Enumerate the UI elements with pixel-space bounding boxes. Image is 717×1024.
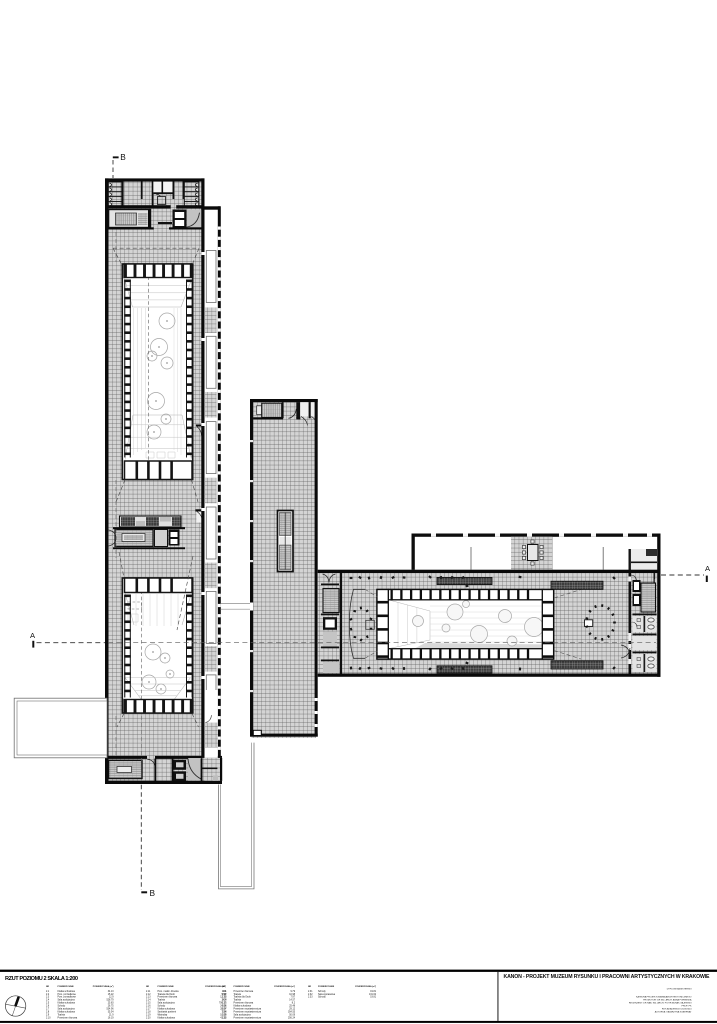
svg-text:Przestrzen wystawiennicza: Przestrzen wystawiennicza <box>234 1008 262 1011</box>
svg-text:Pom. porzadkowe: Pom. porzadkowe <box>58 993 77 996</box>
svg-text:Klatka schodowa: Klatka schodowa <box>58 990 76 993</box>
svg-text:2.32: 2.32 <box>308 994 313 996</box>
svg-text:2.3: 2.3 <box>46 997 50 999</box>
svg-text:528.79: 528.79 <box>106 1000 114 1002</box>
svg-text:NR: NR <box>308 986 312 988</box>
svg-text:10.98: 10.98 <box>289 994 295 996</box>
svg-text:2.1: 2.1 <box>46 991 50 993</box>
svg-text:2.6: 2.6 <box>46 1006 50 1008</box>
svg-text:POWIERZCHNIA (m²): POWIERZCHNIA (m²) <box>355 985 376 988</box>
svg-text:ROK AKADEMICKI 2023/2024: ROK AKADEMICKI 2023/2024 <box>662 1008 692 1011</box>
svg-text:2.22: 2.22 <box>222 994 227 996</box>
svg-text:2.12: 2.12 <box>146 994 151 996</box>
svg-text:POWIERZCHNIE: POWIERZCHNIE <box>158 986 175 988</box>
svg-text:B: B <box>150 888 156 898</box>
svg-text:26.75: 26.75 <box>108 1006 114 1008</box>
svg-text:9.79: 9.79 <box>291 991 296 993</box>
svg-text:2.15: 2.15 <box>146 1003 151 1005</box>
svg-text:Klatka schodowa: Klatka schodowa <box>158 1016 176 1019</box>
svg-text:2.31: 2.31 <box>308 991 313 993</box>
svg-text:2.30: 2.30 <box>222 1017 227 1019</box>
svg-text:2.25: 2.25 <box>222 1003 227 1005</box>
svg-text:RZUT POZIOMU 2 SKALA 1:200: RZUT POZIOMU 2 SKALA 1:200 <box>5 976 78 982</box>
svg-text:2.11: 2.11 <box>146 991 151 993</box>
svg-text:25.83: 25.83 <box>108 1003 114 1005</box>
svg-text:Sala audytoryjna: Sala audytoryjna <box>234 1013 252 1016</box>
svg-text:15.22: 15.22 <box>108 994 114 996</box>
svg-text:21.9: 21.9 <box>109 1014 114 1016</box>
svg-text:2.27: 2.27 <box>222 1009 227 1011</box>
svg-text:PROMOTOR: DR INZ. ARCH. ANNA P: PROMOTOR: DR INZ. ARCH. ANNA POREBSKA <box>643 999 692 1002</box>
svg-text:Przestrzen biurowa: Przestrzen biurowa <box>234 1002 254 1005</box>
svg-text:19.81: 19.81 <box>370 991 376 993</box>
svg-text:131.62: 131.62 <box>369 994 377 996</box>
svg-text:POWIERZCHNIE: POWIERZCHNIE <box>318 986 335 988</box>
svg-text:Schody: Schody <box>158 1006 167 1008</box>
svg-text:Toaleta: Toaleta <box>234 999 242 1002</box>
svg-text:Klatka schodowa: Klatka schodowa <box>234 1005 252 1008</box>
svg-text:2.13: 2.13 <box>146 997 151 999</box>
svg-text:POWIERZCHNIE: POWIERZCHNIE <box>58 986 75 988</box>
svg-text:8.2: 8.2 <box>292 1003 296 1005</box>
svg-text:AUTORKA: KATARZYNA KUBERNAT: AUTORKA: KATARZYNA KUBERNAT <box>655 1011 692 1014</box>
svg-text:25.48: 25.48 <box>289 1006 295 1008</box>
svg-text:35.54: 35.54 <box>108 1012 114 1014</box>
svg-text:NR: NR <box>46 986 50 988</box>
svg-text:Klatka schodowa: Klatka schodowa <box>58 1002 76 1005</box>
svg-text:POWIERZCHNIE: POWIERZCHNIE <box>234 986 251 988</box>
svg-text:NR: NR <box>146 986 150 988</box>
svg-text:A: A <box>705 564 711 573</box>
svg-text:16.19: 16.19 <box>108 1017 114 1019</box>
svg-text:34.13: 34.13 <box>108 991 114 993</box>
svg-text:Toaleta dla Osob: Toaleta dla Osob <box>158 993 176 996</box>
svg-text:Przestrzen wystawiennicza: Przestrzen wystawiennicza <box>234 1016 262 1019</box>
svg-text:Wiatrolap: Wiatrolap <box>158 1013 168 1016</box>
svg-text:Schody: Schody <box>58 1006 67 1008</box>
svg-text:2.33: 2.33 <box>308 997 313 999</box>
svg-text:B: B <box>120 152 126 162</box>
svg-text:12.9: 12.9 <box>109 997 114 999</box>
svg-text:KATEDRA PROJEKTOWANIA ARCHITEK: KATEDRA PROJEKTOWANIA ARCHITEKTONICZNEGO <box>636 996 692 999</box>
svg-text:Przestrzen biurowa: Przestrzen biurowa <box>234 990 254 993</box>
svg-text:A: A <box>30 631 36 640</box>
svg-text:Klatka schodowa: Klatka schodowa <box>158 1008 176 1011</box>
svg-text:KANON - PROJEKT MUZEUM RYSUNKU: KANON - PROJEKT MUZEUM RYSUNKU I PRACOWN… <box>504 974 711 980</box>
svg-text:256.24: 256.24 <box>288 1017 296 1019</box>
svg-text:2.10: 2.10 <box>46 1017 51 1019</box>
svg-text:Sanitariat portierni: Sanitariat portierni <box>158 1011 177 1014</box>
svg-text:2.26: 2.26 <box>222 1006 227 1008</box>
svg-text:Przestrzen wystawiennicza: Przestrzen wystawiennicza <box>234 1011 262 1014</box>
svg-text:RECENZENT: DR HAB. INZ. ARCH.: RECENZENT: DR HAB. INZ. ARCH. PIOTR BURA… <box>629 1002 692 1005</box>
svg-text:2.28: 2.28 <box>222 1012 227 1014</box>
svg-text:2.7: 2.7 <box>46 1009 50 1011</box>
svg-text:Pom. matki i dziecka: Pom. matki i dziecka <box>158 990 180 993</box>
svg-text:2.9: 2.9 <box>46 1014 50 1016</box>
svg-text:Przestrzen biurowa: Przestrzen biurowa <box>158 996 178 999</box>
svg-text:Toaleta: Toaleta <box>158 999 166 1002</box>
svg-text:Klatka schodowa: Klatka schodowa <box>58 1011 76 1014</box>
svg-text:Toaleta: Toaleta <box>58 1013 66 1016</box>
svg-text:2.2: 2.2 <box>46 994 50 996</box>
svg-text:Sala wystawowa: Sala wystawowa <box>318 993 336 996</box>
svg-text:354.55: 354.55 <box>288 1012 296 1014</box>
svg-text:534.96: 534.96 <box>106 1009 114 1011</box>
svg-text:Schody: Schody <box>318 997 327 999</box>
svg-text:2.17: 2.17 <box>146 1009 151 1011</box>
svg-text:2.8: 2.8 <box>46 1012 50 1014</box>
svg-text:2.14: 2.14 <box>146 1000 151 1002</box>
svg-text:2.19: 2.19 <box>146 1014 151 1016</box>
svg-text:2.4: 2.4 <box>46 1000 50 1002</box>
svg-text:POWIERZCHNIA (m²): POWIERZCHNIA (m²) <box>93 985 114 988</box>
svg-text:2.24: 2.24 <box>222 1000 227 1002</box>
svg-text:Sala audytoryjna: Sala audytoryjna <box>158 1002 176 1005</box>
svg-text:19.81: 19.81 <box>370 997 376 999</box>
svg-text:2.23: 2.23 <box>222 997 227 999</box>
svg-text:2.18: 2.18 <box>146 1012 151 1014</box>
svg-text:29.12: 29.12 <box>289 1009 295 1011</box>
svg-text:Pom. porzadkowe: Pom. porzadkowe <box>58 996 77 999</box>
svg-text:2.29: 2.29 <box>222 1014 227 1016</box>
svg-text:POWIERZCHNIA (m²): POWIERZCHNIA (m²) <box>274 985 295 988</box>
svg-text:Toaleta dla Osob: Toaleta dla Osob <box>234 996 252 999</box>
svg-text:2.5: 2.5 <box>46 1003 50 1005</box>
svg-text:14.57: 14.57 <box>289 1000 295 1002</box>
svg-text:7.97: 7.97 <box>291 997 296 999</box>
svg-text:Schody: Schody <box>318 991 327 993</box>
svg-text:DYPLOM MAGISTERSKI: DYPLOM MAGISTERSKI <box>667 988 692 991</box>
svg-text:50.09: 50.09 <box>289 1014 295 1016</box>
svg-text:2.21: 2.21 <box>222 991 227 993</box>
svg-text:PROF. PK: PROF. PK <box>682 1006 693 1008</box>
svg-text:NR: NR <box>222 986 226 988</box>
svg-text:2.20: 2.20 <box>146 1017 151 1019</box>
svg-text:Sala audytoryjna: Sala audytoryjna <box>58 1008 76 1011</box>
svg-text:Toaleta: Toaleta <box>234 993 242 996</box>
svg-text:Przestrzen biurowa: Przestrzen biurowa <box>58 1016 78 1019</box>
svg-text:Sala audytoryjna: Sala audytoryjna <box>58 999 76 1002</box>
svg-text:2.16: 2.16 <box>146 1006 151 1008</box>
